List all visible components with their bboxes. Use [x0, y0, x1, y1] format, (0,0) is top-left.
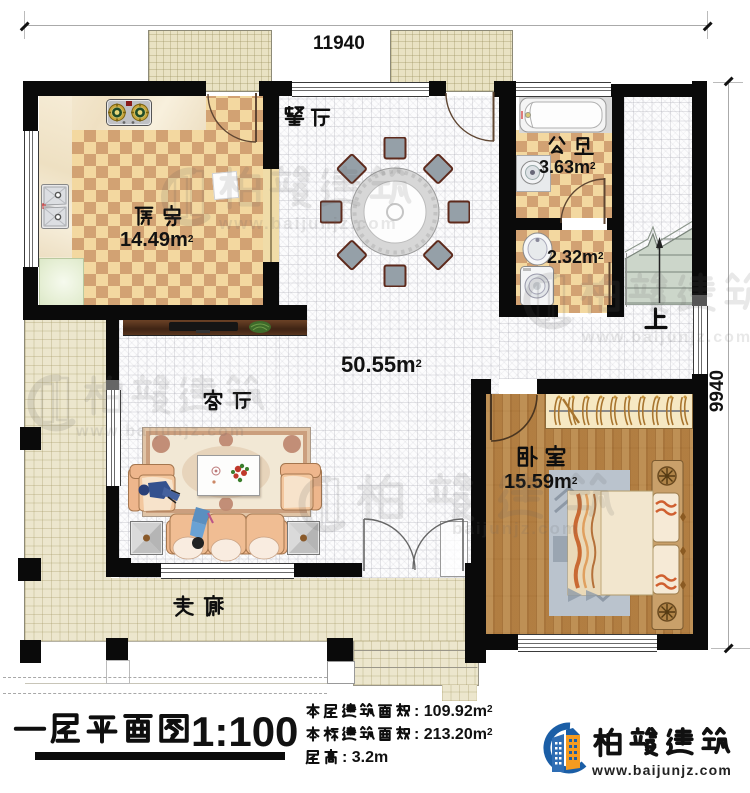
svg-text:www.baijunjz.com: www.baijunjz.com	[581, 329, 750, 346]
svg-text:www.baijunjz.com: www.baijunjz.com	[218, 214, 398, 233]
svg-text:baijunjz.com: baijunjz.com	[452, 519, 579, 538]
svg-text:www.baijunjz.com: www.baijunjz.com	[75, 423, 246, 440]
